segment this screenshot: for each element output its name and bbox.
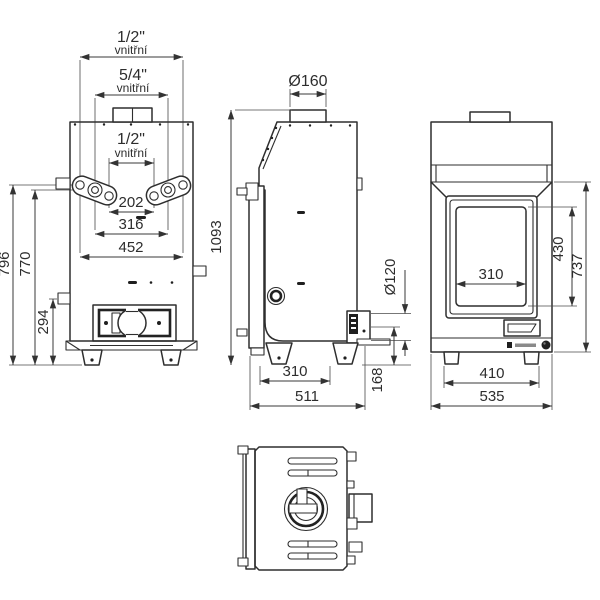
side-burner-box xyxy=(347,311,390,345)
rear-top-connection-block xyxy=(113,108,152,122)
view-top xyxy=(238,446,372,570)
side-dimensions: Ø160 1093 Ø120 168 310 511 xyxy=(208,73,411,410)
front-latch-knob xyxy=(542,341,551,350)
top-rear-fittings xyxy=(347,452,372,564)
side-flue-collar xyxy=(290,110,326,122)
side-burner-rail xyxy=(357,339,390,345)
rear-leg-right xyxy=(161,350,181,365)
dim-side-port-height: 168 xyxy=(369,367,386,392)
dim-side-height-total: 1093 xyxy=(208,220,225,253)
front-flue-box xyxy=(470,112,510,122)
side-body xyxy=(259,122,357,341)
dim-front-width-total: 535 xyxy=(479,388,504,405)
rear-right-pipe-stub xyxy=(193,266,206,276)
front-leg-left xyxy=(444,352,459,364)
dim-rear-height-drain: 294 xyxy=(35,309,52,334)
side-weld-mark-lower xyxy=(297,282,305,285)
rear-flange-left xyxy=(70,173,120,207)
side-door-slab xyxy=(237,183,264,355)
dim-rear-top-mid-note: vnitřní xyxy=(117,81,150,95)
top-damper-key-horizontal xyxy=(289,504,317,513)
dim-rear-inner-note: vnitřní xyxy=(115,146,148,160)
front-top-band xyxy=(431,165,552,182)
side-air-intake xyxy=(268,288,285,305)
rear-flange-right xyxy=(144,173,194,207)
front-leg-right xyxy=(524,352,539,364)
dim-rear-height-connections: 770 xyxy=(17,251,34,276)
technical-drawing-page: 1/2" vnitřní 5/4" vnitřní 1/2" vnitřní 2… xyxy=(0,0,600,600)
side-screws xyxy=(262,124,351,161)
dim-front-leg-spacing: 410 xyxy=(479,365,504,382)
top-flue-opening xyxy=(285,488,328,531)
side-door-foot xyxy=(251,348,264,355)
side-slope-inner-line xyxy=(263,126,281,169)
side-door-hinge-top xyxy=(246,183,258,200)
top-hinge-pin-2 xyxy=(238,558,248,566)
dim-rear-spacing-outer: 452 xyxy=(118,239,143,256)
side-hinge-pin-top xyxy=(237,188,247,195)
dim-rear-spacing-inner: 202 xyxy=(118,194,143,211)
dim-side-leg-spacing: 310 xyxy=(282,363,307,380)
stove-technical-drawing: 1/2" vnitřní 5/4" vnitřní 1/2" vnitřní 2… xyxy=(0,0,600,600)
view-side: Ø160 1093 Ø120 168 310 511 xyxy=(208,73,411,410)
side-weld-mark-upper xyxy=(297,211,305,214)
front-brand-plate xyxy=(507,342,536,348)
front-glass-window xyxy=(456,207,526,306)
dim-rear-spacing-mid: 316 xyxy=(118,216,143,233)
front-dimensions: 310 430 737 410 535 xyxy=(431,182,591,410)
rear-burner-recess xyxy=(93,305,176,341)
rear-leg-left xyxy=(82,350,102,365)
dim-rear-height-total: 796 xyxy=(0,251,13,276)
front-door-handle xyxy=(504,320,540,336)
top-hinge-pin-1 xyxy=(238,446,248,454)
dim-side-port-diameter: Ø120 xyxy=(382,259,399,296)
rear-left-pipe-stub xyxy=(56,178,70,189)
rear-drain-stub xyxy=(58,293,70,304)
rear-base xyxy=(66,341,197,350)
front-door-frame xyxy=(431,182,552,318)
burner-opening xyxy=(118,309,146,337)
rear-top-edge-screws xyxy=(74,123,189,125)
view-front: 310 430 737 410 535 xyxy=(431,112,591,410)
side-leg-rear xyxy=(333,343,358,364)
top-door-slab xyxy=(238,446,255,569)
dim-front-door-height: 737 xyxy=(569,253,586,278)
dim-front-glass-width: 310 xyxy=(478,266,503,283)
dim-rear-top-outer-note: vnitřní xyxy=(115,43,148,57)
dim-side-flue-diameter: Ø160 xyxy=(288,73,327,90)
view-rear: 1/2" vnitřní 5/4" vnitřní 1/2" vnitřní 2… xyxy=(0,29,206,365)
dim-front-glass-height: 430 xyxy=(550,236,567,261)
dim-side-depth-total: 511 xyxy=(295,388,319,405)
side-hinge-pin-bottom xyxy=(237,329,247,336)
side-rear-bracket xyxy=(357,178,362,190)
side-leg-front xyxy=(266,343,292,364)
